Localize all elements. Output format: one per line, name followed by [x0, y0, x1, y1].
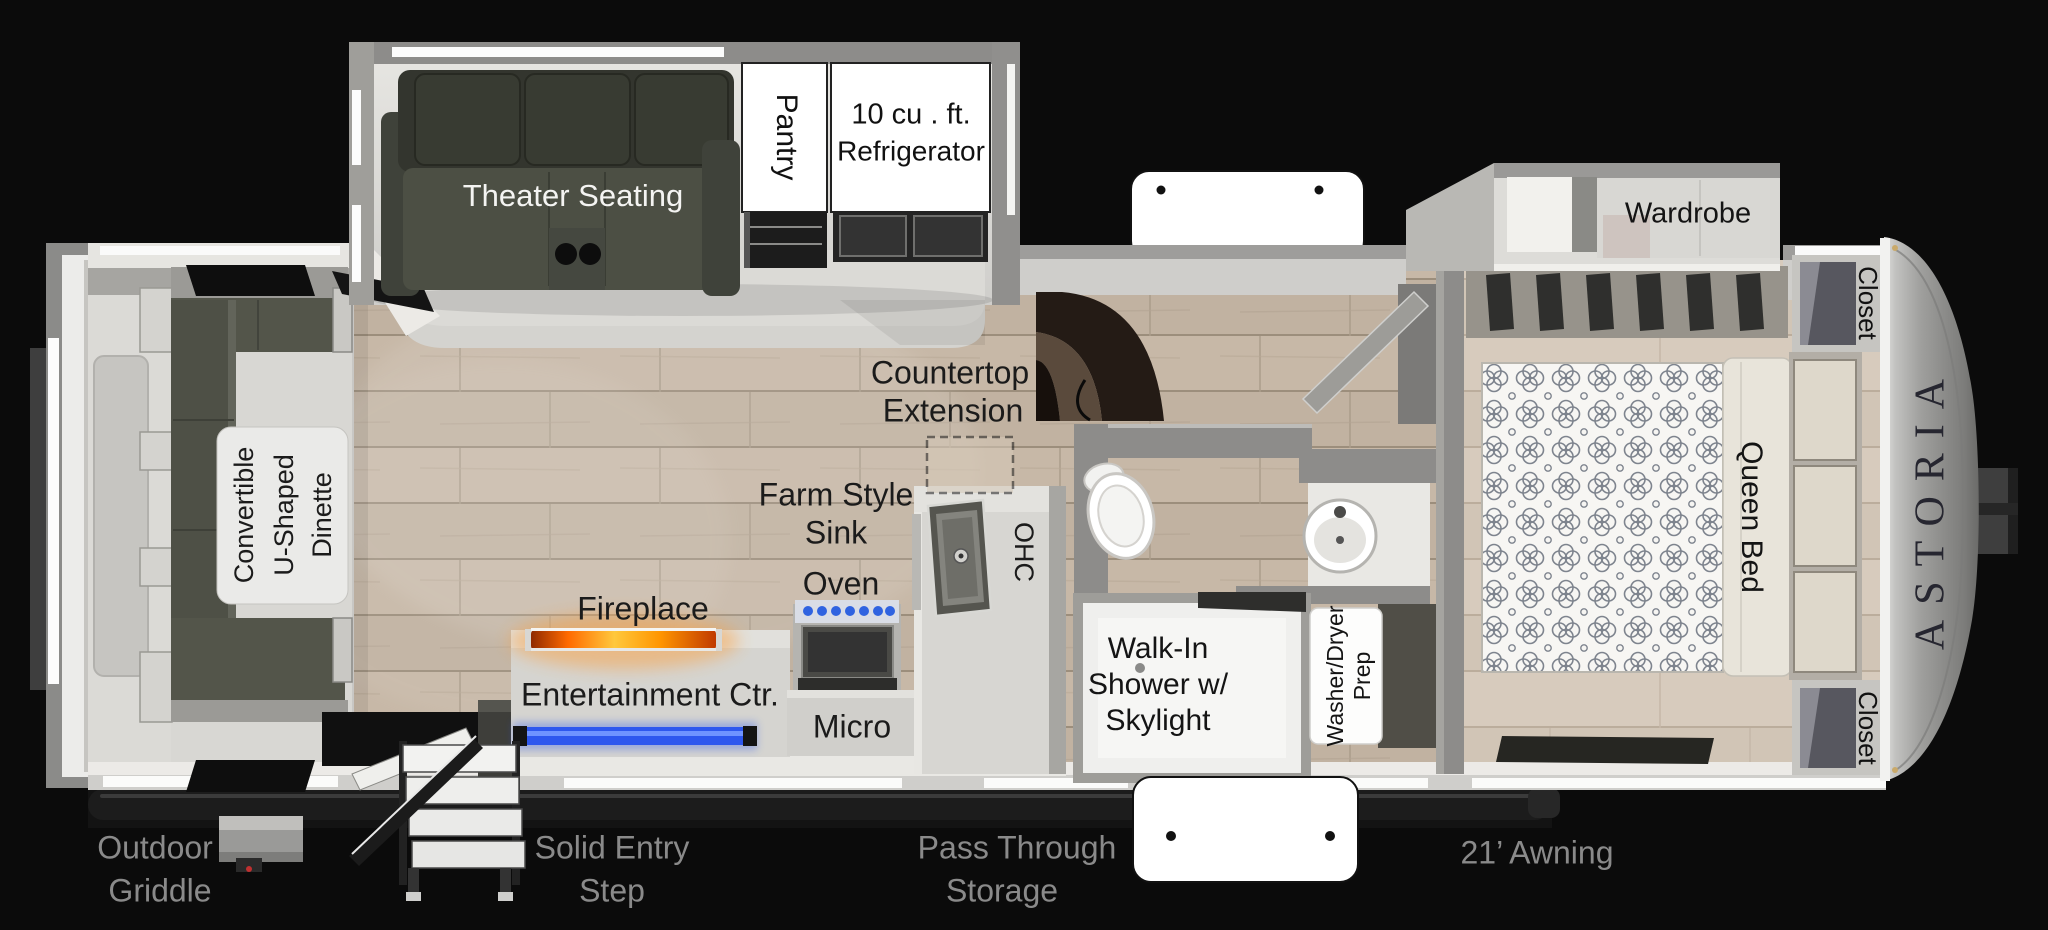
svg-text:Countertop: Countertop: [871, 354, 1029, 390]
svg-text:Pantry: Pantry: [770, 94, 803, 181]
svg-text:Pass Through: Pass Through: [918, 829, 1117, 865]
svg-text:Step: Step: [579, 872, 645, 908]
svg-text:Solid Entry: Solid Entry: [535, 829, 690, 865]
svg-text:Fireplace: Fireplace: [577, 590, 709, 626]
svg-text:Theater Seating: Theater Seating: [463, 178, 684, 213]
svg-text:Closet: Closet: [1853, 266, 1883, 340]
svg-text:Entertainment Ctr.: Entertainment Ctr.: [521, 676, 779, 712]
svg-text:Refrigerator: Refrigerator: [837, 135, 985, 166]
svg-text:OHC: OHC: [1009, 522, 1039, 582]
svg-text:Convertible: Convertible: [229, 447, 259, 584]
svg-text:Micro: Micro: [813, 708, 891, 744]
svg-text:Sink: Sink: [805, 514, 868, 550]
svg-text:Dinette: Dinette: [307, 472, 337, 558]
svg-text:Prep: Prep: [1349, 652, 1375, 701]
svg-text:Walk-In: Walk-In: [1108, 632, 1209, 665]
svg-text:Farm Style: Farm Style: [759, 476, 914, 512]
svg-text:Closet: Closet: [1853, 691, 1883, 765]
svg-text:10 cu . ft.: 10 cu . ft.: [851, 99, 970, 131]
svg-text:Griddle: Griddle: [108, 872, 211, 908]
svg-text:Wardrobe: Wardrobe: [1625, 198, 1751, 230]
svg-text:Queen Bed: Queen Bed: [1735, 441, 1768, 593]
svg-text:Oven: Oven: [803, 565, 879, 601]
svg-text:Shower w/: Shower w/: [1088, 668, 1229, 701]
svg-text:U-Shaped: U-Shaped: [269, 454, 299, 576]
svg-text:Extension: Extension: [883, 392, 1024, 428]
svg-text:Washer/Dryer: Washer/Dryer: [1322, 605, 1348, 746]
svg-text:21’ Awning: 21’ Awning: [1460, 834, 1613, 870]
svg-text:Outdoor: Outdoor: [97, 829, 213, 865]
svg-text:ASTORIA: ASTORIA: [1908, 364, 1954, 650]
svg-text:Skylight: Skylight: [1105, 704, 1211, 737]
svg-text:Storage: Storage: [946, 872, 1058, 908]
